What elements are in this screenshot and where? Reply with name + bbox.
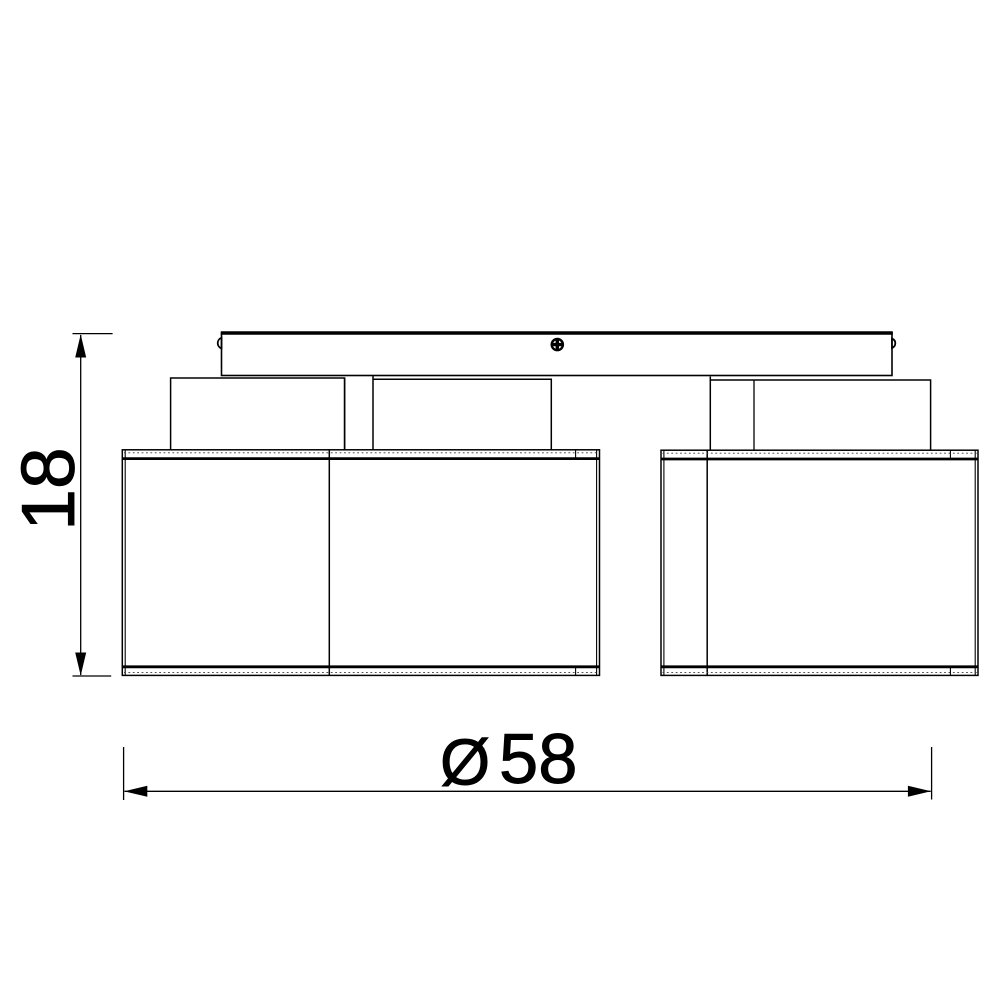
- svg-text:58: 58: [499, 719, 577, 798]
- svg-text:18: 18: [6, 447, 90, 530]
- svg-text:Ø: Ø: [440, 727, 490, 799]
